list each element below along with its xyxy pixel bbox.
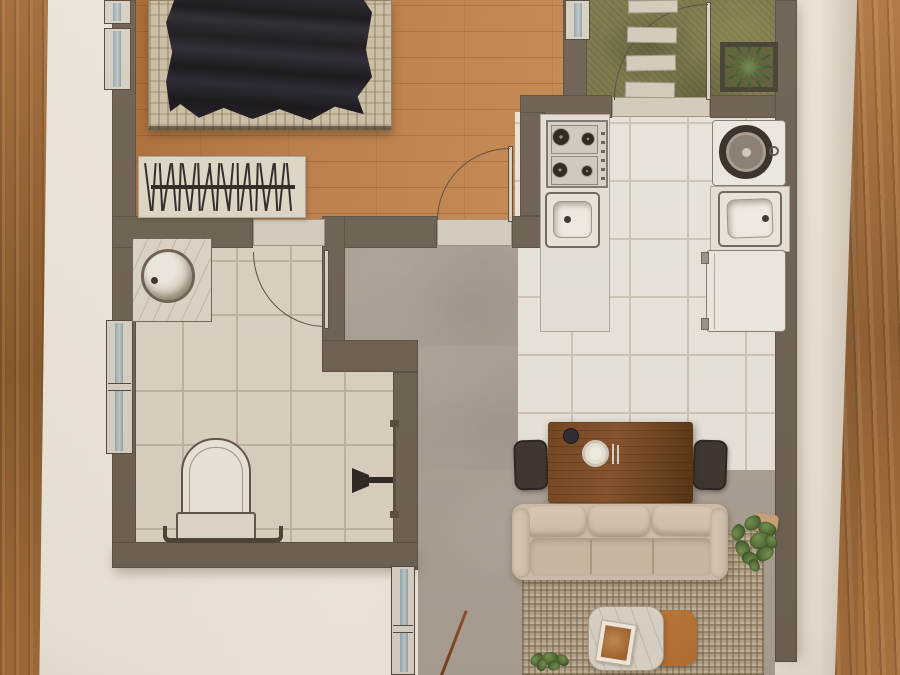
toilet-seat-line [189, 447, 243, 518]
agave-plant [721, 43, 777, 91]
stepping-stone [626, 55, 676, 72]
bedroom-window-2 [104, 28, 131, 90]
stove-burner [552, 128, 570, 146]
rug-hatch-stroke [236, 163, 239, 211]
bedroom-window-right [565, 0, 590, 40]
table-bowl [563, 428, 579, 444]
bedroom-window-1 [104, 0, 131, 24]
bedroom-rug [138, 156, 306, 218]
window-divider [108, 383, 131, 391]
washing-machine-knob [769, 146, 779, 156]
window-glazing [113, 31, 121, 87]
bathroom-faucet-dot [151, 277, 158, 284]
stepping-stone [625, 82, 675, 99]
fridge-handle-bottom [701, 318, 709, 330]
living-window [391, 566, 415, 675]
paper-edge-shadow-right [820, 0, 858, 675]
hallway-floor-lower [418, 346, 518, 472]
faucet-dot [564, 216, 571, 223]
shower-panel-cap-top [390, 420, 399, 427]
stove-burner [581, 165, 593, 177]
kitchen-main-sink [718, 191, 782, 247]
bedroom-door-threshold [437, 219, 512, 246]
sofa-arm-right [710, 508, 728, 578]
shower-arm [367, 477, 396, 483]
shower-panel-cap-bottom [390, 511, 399, 518]
stove-knobs [601, 132, 605, 180]
table-wood-left-edge [0, 0, 48, 675]
floor-plan-photo [0, 0, 900, 675]
shower-glass-panel [393, 424, 396, 516]
bathroom-window [106, 320, 133, 454]
book-cover-art [601, 625, 632, 661]
sofa-back-cushion-3 [652, 505, 716, 535]
stove-burner [581, 132, 595, 146]
stove-burner [552, 162, 568, 178]
bathroom-door-threshold [253, 219, 325, 246]
sink-basin [553, 201, 592, 238]
kitchen-prep-sink [545, 192, 600, 248]
stepping-stone [627, 27, 677, 44]
fridge [706, 250, 786, 332]
table-fork [617, 445, 619, 464]
potted-plant-bottom [528, 652, 576, 675]
wall-bath-step [322, 340, 418, 372]
table-plate-center [589, 447, 602, 460]
sofa-arm-left [512, 508, 530, 578]
sofa-seat [530, 538, 712, 576]
stepping-stones [625, 0, 679, 100]
faucet-dot [762, 215, 769, 222]
table-knife [612, 444, 614, 464]
window-divider [393, 625, 413, 633]
sofa-seam [590, 540, 592, 574]
plant-leaf [547, 660, 560, 672]
bathroom-floor-lower [130, 352, 395, 544]
window-glazing [400, 569, 408, 672]
wall-living-left [393, 372, 418, 570]
coffee-table-book [595, 619, 637, 666]
fridge-handle-top [701, 252, 709, 264]
window-glazing [574, 3, 582, 37]
washing-machine-drum-cap [742, 148, 751, 157]
wall-bath-bottom [112, 542, 418, 568]
hallway-floor [345, 238, 518, 346]
dining-chair-right [692, 439, 728, 490]
sofa-back-cushion-1 [524, 505, 587, 536]
stepping-stone [628, 0, 678, 13]
window-glazing [113, 3, 121, 21]
potted-plant-right [728, 516, 782, 574]
fridge-door-line [714, 253, 715, 329]
bed-duvet [166, 0, 372, 124]
sofa-seam [652, 540, 654, 574]
bathroom-basin [141, 249, 195, 303]
towel-rail [163, 526, 283, 543]
dining-chair-left [513, 439, 549, 490]
entry-door-threshold [612, 97, 710, 117]
sofa-back-cushion-2 [588, 506, 650, 536]
